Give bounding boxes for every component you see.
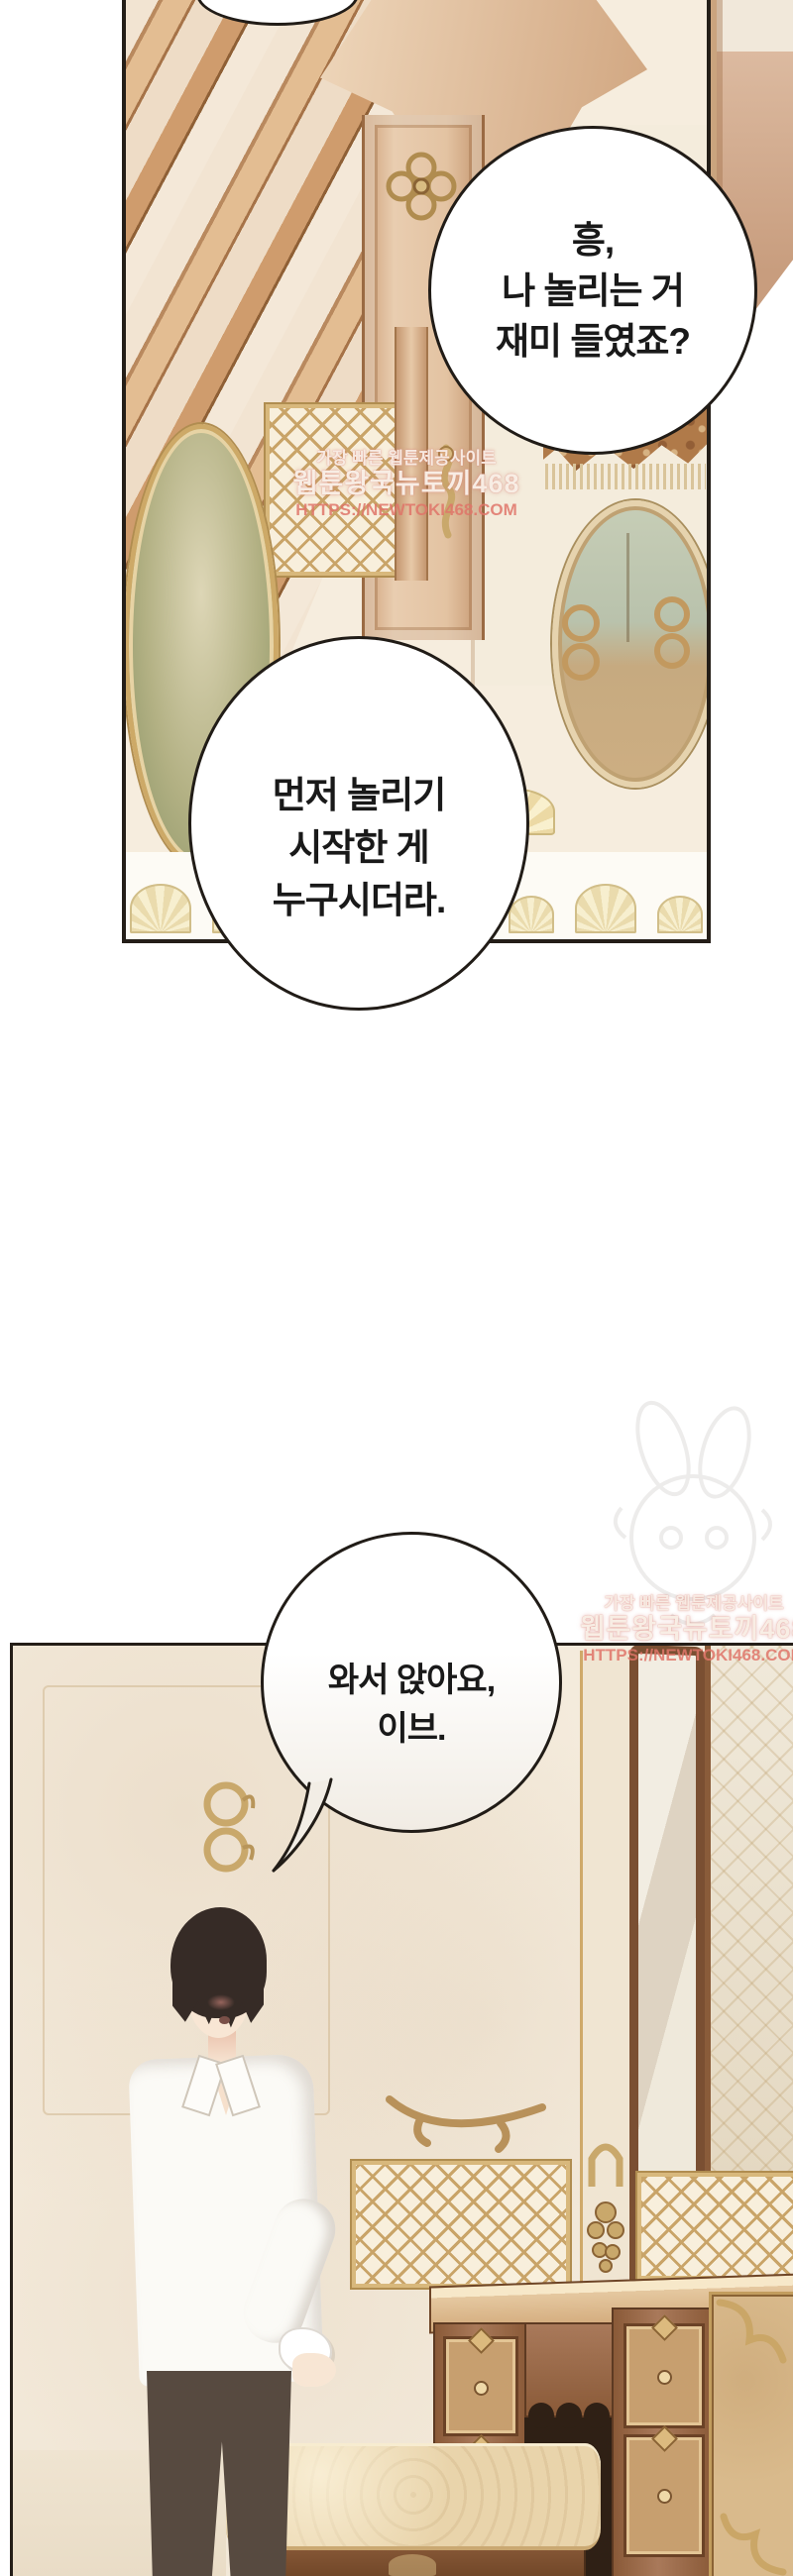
gold-arch-ornament	[586, 2133, 625, 2189]
watermark-bottom: 가장 빠른 웹툰제공사이트 웹툰왕국뉴토끼468 HTTPS://NEWTOKI…	[547, 1593, 793, 1666]
gold-corner-scroll	[714, 2297, 789, 2372]
drawer-knob	[657, 2489, 672, 2504]
speech-bubble-3-tail	[266, 1775, 345, 1875]
gold-corner-scroll	[718, 2509, 789, 2576]
watermark-top: 가장 빠른 웹툰제공사이트 웹툰왕국뉴토끼468 HTTPS://NEWTOKI…	[248, 448, 565, 521]
gold-scroll-ornament-right	[643, 594, 701, 672]
speech-bubble-1: 흥, 나 놀리는 거 재미 들였죠?	[428, 126, 757, 455]
drawer	[623, 2434, 705, 2557]
bubble1-line2: 나 놀리는 거	[502, 266, 684, 316]
watermark-bottom-line3: HTTPS://NEWTOKI468.COM	[547, 1645, 793, 1666]
watermark-top-line1: 가장 빠른 웹툰제공사이트	[248, 448, 565, 469]
watermark-bottom-line1: 가장 빠른 웹툰제공사이트	[547, 1593, 793, 1614]
man-hand	[292, 2353, 336, 2387]
gold-branch-ornament	[382, 2078, 550, 2161]
bubble2-line2: 시작한 게	[288, 821, 428, 874]
shell-ornament	[130, 884, 191, 933]
painting-mast-detail	[626, 533, 629, 642]
bubble1-line3: 재미 들였죠?	[496, 316, 690, 367]
bubble2-line1: 먼저 놀리기	[273, 769, 445, 821]
drawer	[623, 2323, 705, 2428]
webtoon-page: 흥, 나 놀리는 거 재미 들였죠? 먼저 놀리기 시작한 게 누구시더라. 가…	[0, 0, 793, 2576]
drawer-keystone	[651, 2314, 678, 2341]
speech-bubble-2: 먼저 놀리기 시작한 게 누구시더라.	[188, 636, 529, 1011]
lattice-wall-panel-right	[637, 2173, 793, 2280]
man-mouth	[219, 2016, 230, 2024]
shell-ornament	[575, 884, 636, 933]
watermark-top-line3: HTTPS://NEWTOKI468.COM	[248, 499, 565, 521]
drawer-keystone	[651, 2425, 678, 2452]
curtain-fringe	[545, 464, 706, 489]
lattice-wall-panel-left	[352, 2161, 570, 2288]
apron-scallop	[584, 2403, 610, 2428]
drawer-knob	[474, 2381, 489, 2396]
apron-scallop	[556, 2403, 582, 2428]
bubble3-line1: 와서 앉아요,	[328, 1657, 495, 1705]
floral-rosette-ornament	[586, 2193, 625, 2276]
desk-apron	[524, 2322, 616, 2417]
drawer	[443, 2336, 518, 2436]
gold-scroll-ornament-left	[552, 602, 610, 684]
gold-scroll-wall-ornament	[193, 1778, 259, 1876]
bubble3-line2: 이브.	[377, 1705, 445, 1754]
watermark-bottom-line2: 웹툰왕국뉴토끼468	[547, 1614, 793, 1645]
drawer-knob	[657, 2370, 672, 2385]
desk-right-pedestal	[612, 2308, 715, 2576]
stool-shell-ornament	[389, 2554, 436, 2576]
shell-ornament	[657, 896, 703, 933]
shell-ornament	[509, 896, 554, 933]
apron-scallop	[528, 2403, 554, 2428]
desk-side-panel	[709, 2292, 793, 2576]
bubble1-line1: 흥,	[572, 215, 614, 266]
man-blush	[207, 1994, 235, 2010]
drawer-keystone	[468, 2327, 495, 2354]
watermark-top-line2: 웹툰왕국뉴토끼468	[248, 469, 565, 499]
bubble2-line3: 누구시더라.	[273, 874, 445, 926]
